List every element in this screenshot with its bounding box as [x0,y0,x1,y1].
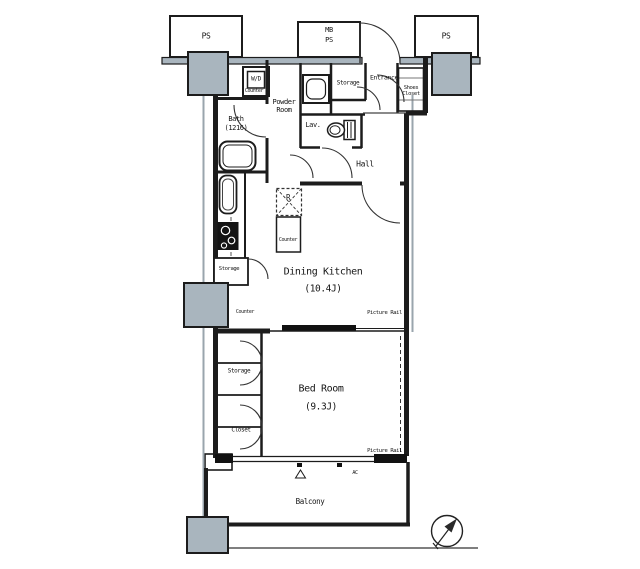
refrigerator-label: R [286,194,290,202]
vanity-icon [303,75,329,103]
shoes-closet-label: Shoes Closet [398,85,424,97]
dining-kitchen-label: Dining Kitchen [284,266,363,277]
bath-label: Bath [228,116,243,124]
compass-icon [432,516,463,550]
closet-label: Closet [231,428,250,435]
storage-bedroom-label: Storage [228,369,251,376]
counter-label-r: Counter [279,238,297,244]
ps-bottom-label: PS [215,459,221,465]
hall-label: Hall [356,161,374,170]
counter-box [277,217,301,252]
balcony-label: Balcony [296,498,325,506]
ps-right-label: PS [442,33,451,42]
bathtub-icon [220,142,256,171]
window-sills [215,454,407,478]
air-con-label: AC [352,471,357,477]
dining-kitchen-size-label: (10.4J) [304,285,341,296]
picture-rail-label-dk: Picture Rail [367,310,402,316]
mb-label: MB [325,27,333,35]
bed-room-label: Bed Room [299,383,344,394]
bed-room-size-label: (9.3J) [305,403,337,414]
picture-rail-label-br: Picture Rail [367,448,402,454]
counter-label-k: Counter [236,310,254,316]
sliding-door [270,325,406,331]
powder-room-label: Powder Room [265,99,303,115]
ps-mid-label: PS [325,37,333,45]
floorplan: PS MB PS PS W/D Counter Powder Room Bath… [0,0,640,569]
storage-entrance-label: Storage [337,81,360,88]
counter-label-wd: Counter [245,89,263,95]
lavatory-label: Lav. [305,122,320,130]
storage-kitchen-label: Storage [219,266,239,272]
toilet-icon [328,121,356,140]
entrance-label: Entrance [370,74,398,81]
ps-left-label: PS [202,33,211,42]
bath-size-label: (1216) [225,125,248,133]
washer-dryer-label: W/D [251,77,261,84]
